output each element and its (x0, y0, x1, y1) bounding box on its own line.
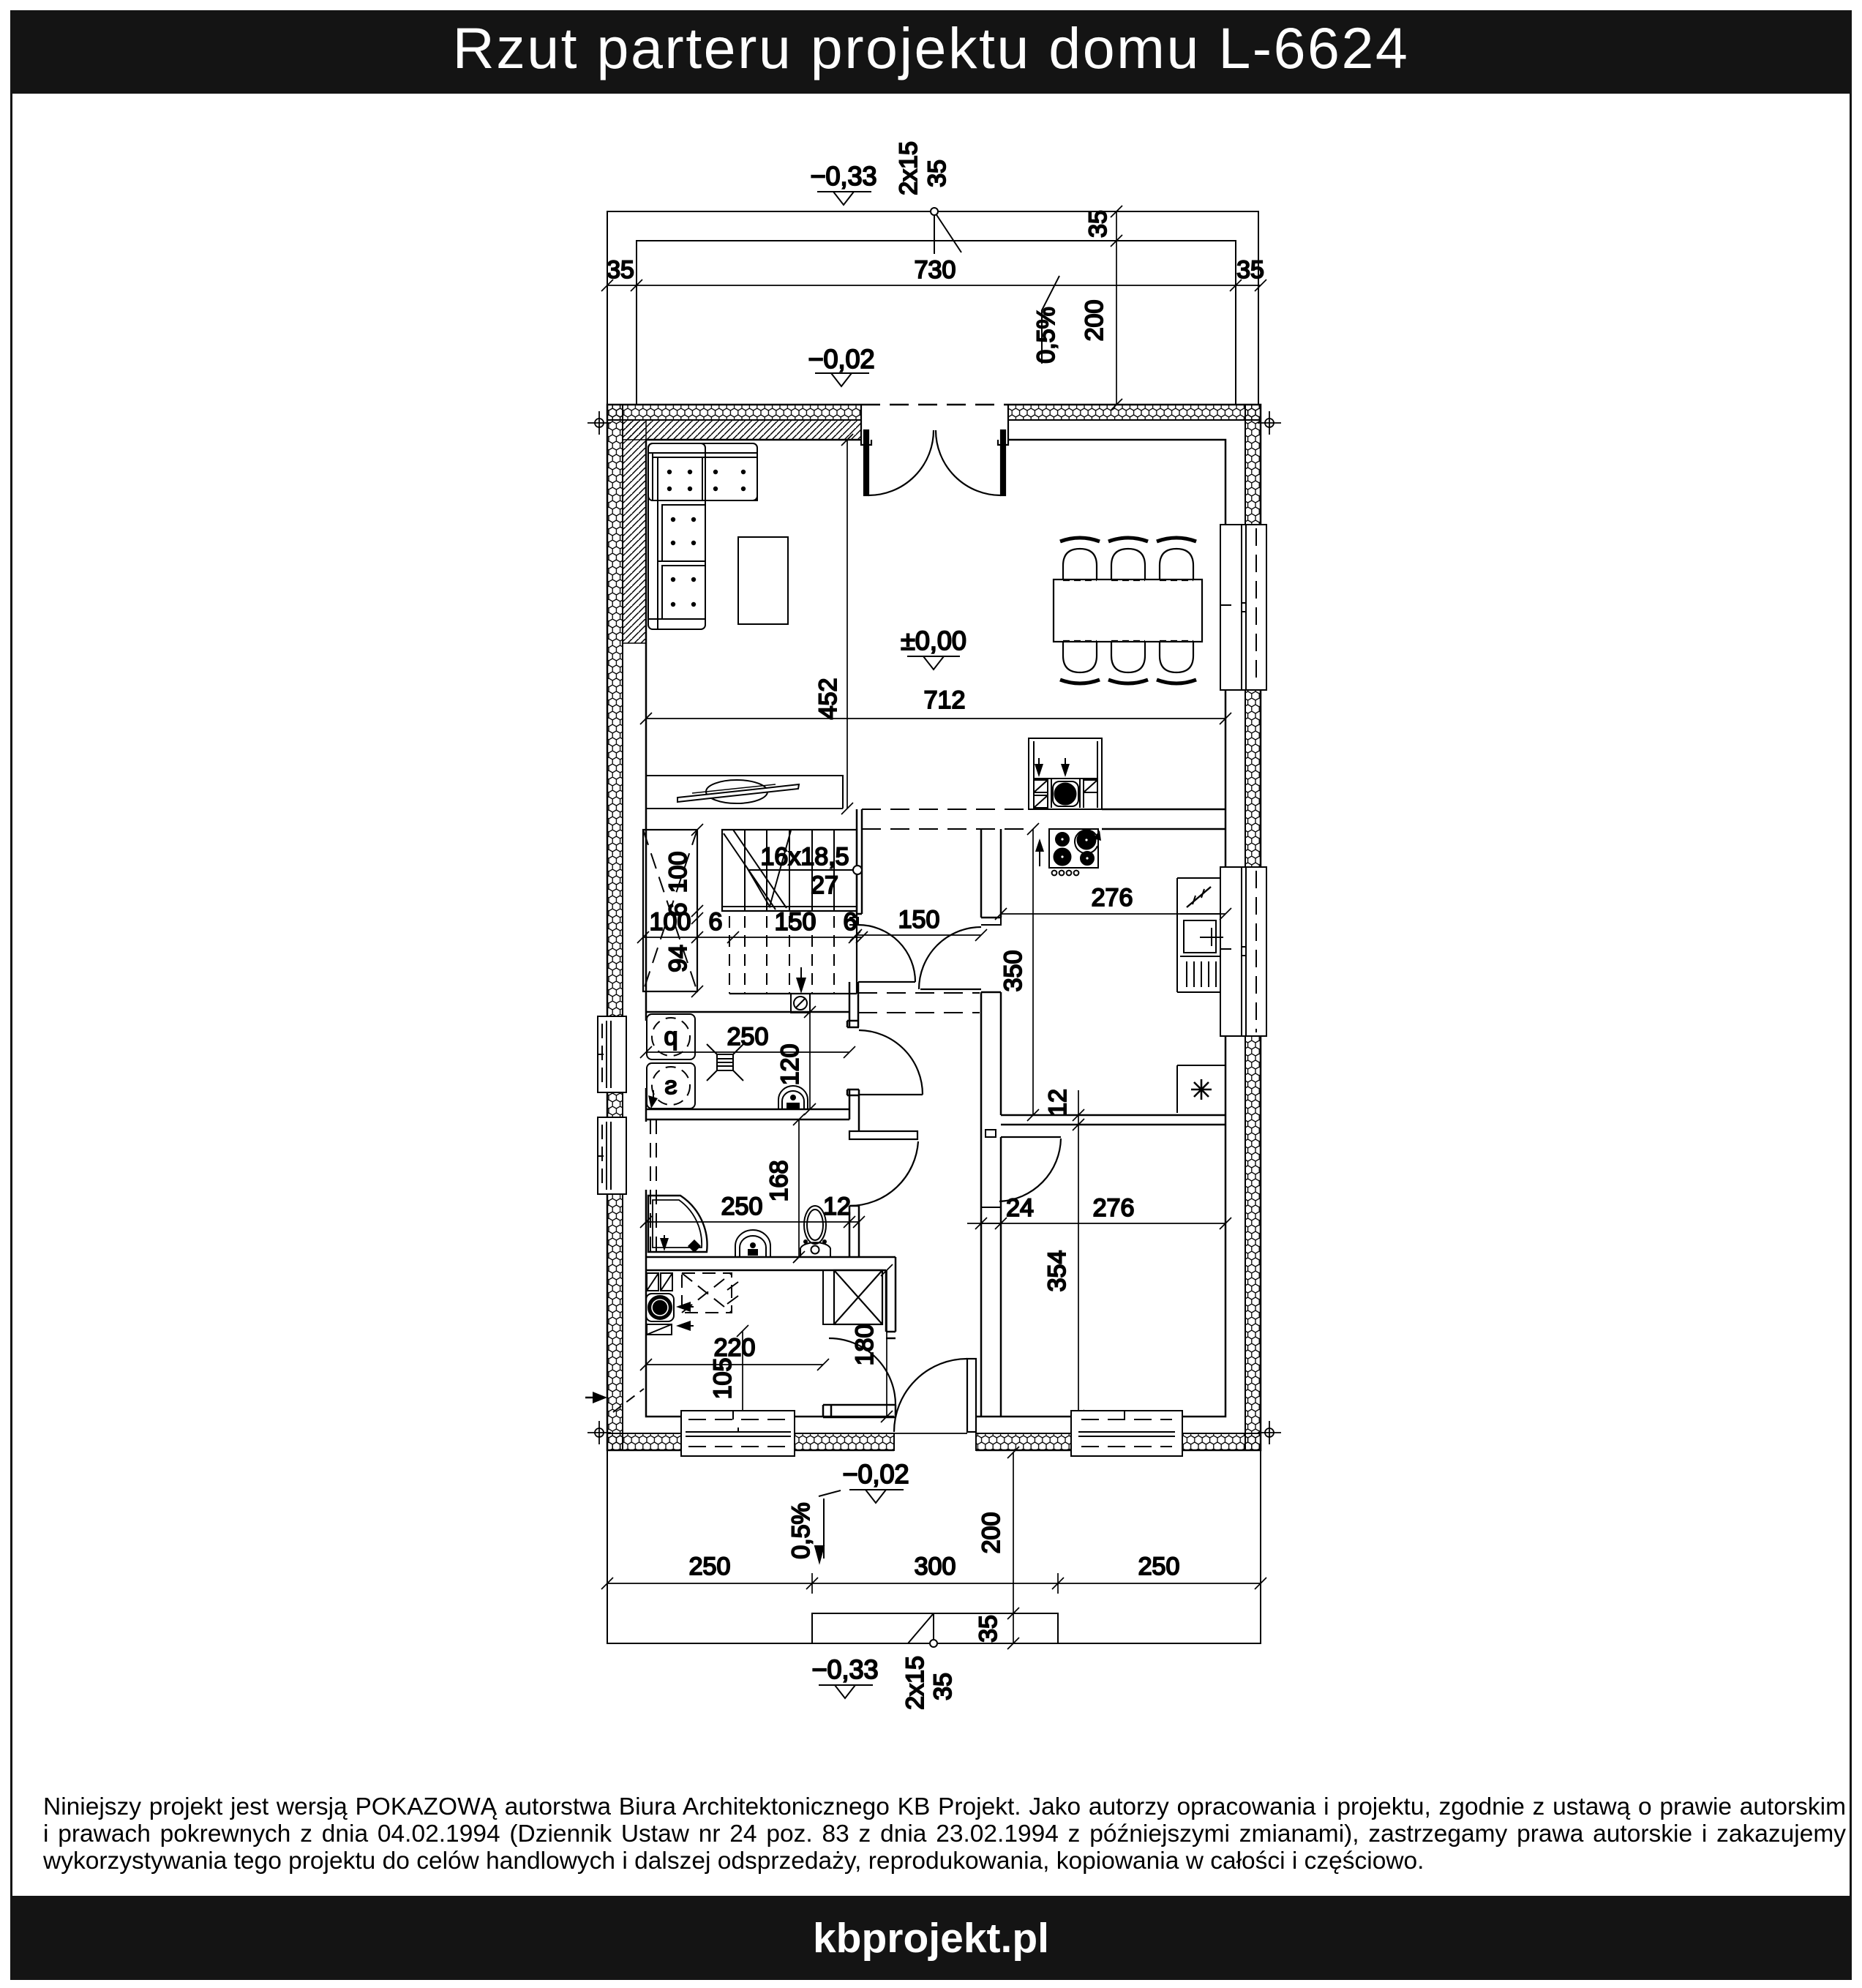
svg-text:35: 35 (1236, 256, 1264, 284)
svg-text:94: 94 (664, 945, 692, 972)
svg-text:250: 250 (689, 1553, 731, 1580)
svg-text:35: 35 (923, 160, 951, 187)
svg-text:276: 276 (1093, 1194, 1135, 1222)
svg-text:276: 276 (1092, 884, 1133, 912)
svg-text:105: 105 (709, 1358, 737, 1400)
svg-text:−0,33: −0,33 (811, 1654, 878, 1684)
svg-text:730: 730 (915, 256, 956, 284)
svg-text:−0,33: −0,33 (810, 161, 876, 191)
svg-text:0,5%: 0,5% (1032, 307, 1060, 364)
svg-text:12: 12 (823, 1193, 851, 1220)
svg-text:6: 6 (844, 908, 857, 936)
svg-text:27: 27 (811, 871, 838, 899)
svg-text:12: 12 (1044, 1089, 1072, 1117)
svg-text:s: s (665, 1072, 677, 1100)
svg-text:35: 35 (929, 1673, 957, 1700)
svg-text:300: 300 (915, 1553, 956, 1580)
svg-text:350: 350 (999, 950, 1027, 992)
svg-text:150: 150 (775, 908, 816, 936)
svg-text:200: 200 (977, 1512, 1005, 1554)
svg-text:354: 354 (1043, 1250, 1071, 1292)
svg-text:180: 180 (851, 1324, 879, 1366)
svg-text:200: 200 (1081, 300, 1108, 342)
svg-text:100: 100 (664, 852, 692, 893)
svg-text:250: 250 (1138, 1553, 1180, 1580)
svg-text:35: 35 (975, 1615, 1002, 1643)
svg-text:±0,00: ±0,00 (901, 626, 966, 656)
svg-text:−0,02: −0,02 (808, 344, 874, 374)
svg-text:712: 712 (924, 686, 966, 714)
svg-text:168: 168 (765, 1160, 793, 1202)
svg-text:2x15: 2x15 (895, 141, 923, 195)
svg-text:6: 6 (664, 903, 692, 917)
svg-text:0,5%: 0,5% (787, 1502, 815, 1559)
svg-text:220: 220 (714, 1334, 756, 1362)
svg-text:250: 250 (721, 1193, 763, 1220)
svg-text:452: 452 (814, 678, 842, 720)
svg-text:35: 35 (1084, 210, 1112, 238)
svg-text:150: 150 (898, 906, 940, 934)
svg-text:24: 24 (1006, 1194, 1034, 1222)
svg-text:120: 120 (776, 1044, 804, 1086)
svg-text:16x18,5: 16x18,5 (761, 843, 849, 871)
svg-text:6: 6 (709, 908, 723, 936)
svg-text:35: 35 (607, 256, 634, 284)
svg-text:250: 250 (727, 1023, 769, 1051)
svg-text:p: p (664, 1023, 678, 1051)
svg-text:−0,02: −0,02 (842, 1459, 909, 1489)
svg-text:2x15: 2x15 (901, 1656, 929, 1710)
